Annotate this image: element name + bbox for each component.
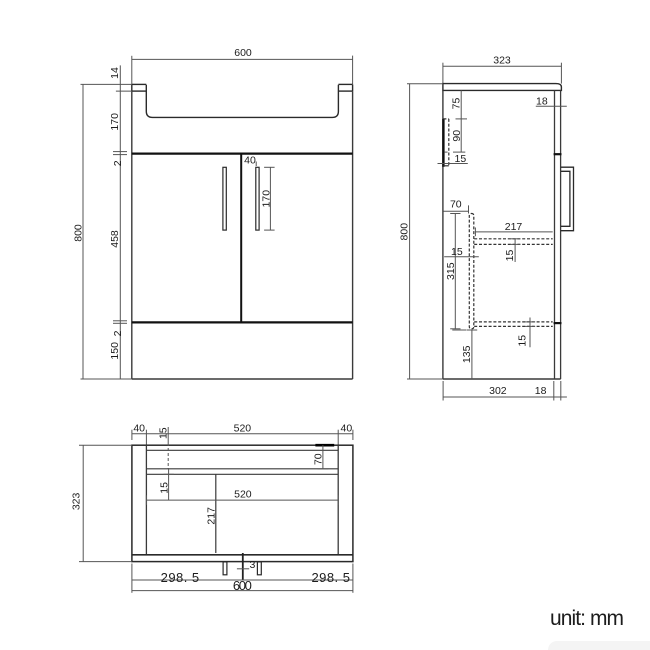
svg-text:70: 70	[313, 453, 325, 465]
svg-text:458: 458	[109, 230, 121, 248]
svg-text:40: 40	[244, 155, 256, 167]
svg-text:15: 15	[517, 335, 529, 347]
svg-text:170: 170	[109, 113, 121, 131]
svg-text:323: 323	[70, 492, 82, 510]
svg-text:315: 315	[445, 262, 457, 280]
svg-text:unit: mm: unit: mm	[550, 607, 624, 630]
svg-text:217: 217	[505, 221, 523, 233]
svg-text:15: 15	[451, 246, 463, 258]
svg-text:15: 15	[157, 427, 169, 439]
svg-text:520: 520	[234, 489, 252, 501]
svg-text:800: 800	[398, 223, 410, 241]
svg-text:90: 90	[451, 130, 463, 142]
svg-text:3: 3	[249, 559, 255, 571]
svg-text:15: 15	[504, 250, 516, 262]
svg-text:18: 18	[536, 95, 548, 107]
svg-text:150: 150	[109, 342, 121, 360]
svg-text:520: 520	[234, 423, 252, 435]
svg-text:302: 302	[489, 385, 507, 397]
svg-text:40: 40	[133, 423, 145, 435]
svg-text:14: 14	[109, 67, 121, 79]
svg-text:2: 2	[112, 160, 124, 166]
svg-text:135: 135	[461, 345, 473, 363]
svg-text:170: 170	[261, 190, 273, 208]
svg-text:18: 18	[535, 385, 547, 397]
svg-text:2: 2	[112, 330, 124, 336]
svg-text:800: 800	[73, 224, 85, 242]
svg-text:600: 600	[234, 47, 252, 59]
svg-text:15: 15	[455, 153, 467, 165]
svg-text:600: 600	[233, 578, 252, 593]
svg-text:298. 5: 298. 5	[311, 570, 350, 585]
svg-text:323: 323	[493, 54, 511, 66]
svg-text:70: 70	[450, 199, 462, 211]
svg-text:298. 5: 298. 5	[161, 570, 200, 585]
svg-text:75: 75	[450, 98, 462, 110]
svg-text:40: 40	[341, 423, 353, 435]
svg-text:217: 217	[206, 507, 218, 525]
svg-text:15: 15	[159, 482, 171, 494]
